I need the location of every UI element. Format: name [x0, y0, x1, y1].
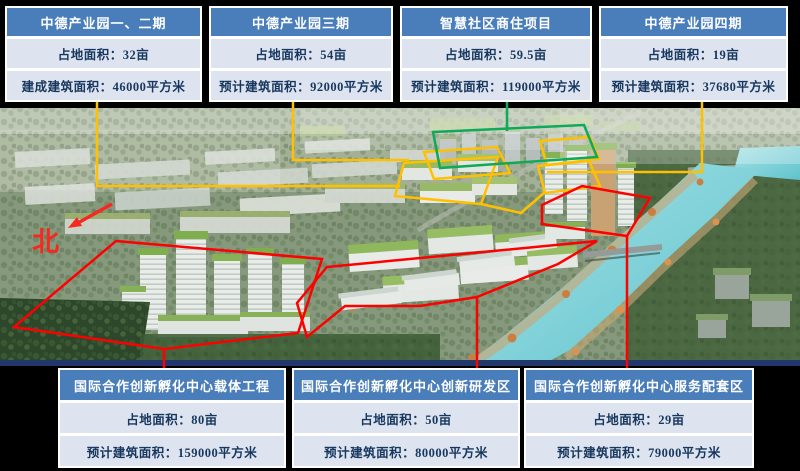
land-area-row: 占地面积：19亩 — [601, 39, 786, 68]
project-title: 国际合作创新孵化中心服务配套区 — [526, 370, 752, 400]
building-area-row: 建成建筑面积：46000平方米 — [7, 71, 200, 100]
building-area-row: 预计建筑面积：119000平方米 — [402, 71, 590, 100]
project-card-phase-1-2: 中德产业园一、二期 占地面积：32亩 建成建筑面积：46000平方米 — [5, 6, 202, 102]
project-title: 智慧社区商住项目 — [402, 8, 590, 36]
project-card-phase-3: 中德产业园三期 占地面积：54亩 预计建筑面积：92000平方米 — [209, 6, 393, 102]
building-area-row: 预计建筑面积：79000平方米 — [526, 436, 752, 466]
project-card-phase-4: 中德产业园四期 占地面积：19亩 预计建筑面积：37680平方米 — [599, 6, 788, 102]
project-title: 国际合作创新孵化中心创新研发区 — [294, 370, 518, 400]
project-title: 中德产业园一、二期 — [7, 8, 200, 36]
project-title: 国际合作创新孵化中心载体工程 — [60, 370, 284, 400]
project-card-carrier: 国际合作创新孵化中心载体工程 占地面积：80亩 预计建筑面积：159000平方米 — [58, 368, 286, 468]
land-area-row: 占地面积：29亩 — [526, 403, 752, 433]
land-area-row: 占地面积：54亩 — [211, 39, 391, 68]
building-area-row: 预计建筑面积：37680平方米 — [601, 71, 786, 100]
project-card-smart-community: 智慧社区商住项目 占地面积：59.5亩 预计建筑面积：119000平方米 — [400, 6, 592, 102]
building-area-row: 预计建筑面积：159000平方米 — [60, 436, 284, 466]
slide: 北 中德产业园一、二期 占地面积：32亩 建成建筑面积：46000平方米 中德产… — [0, 0, 800, 471]
project-title: 中德产业园三期 — [211, 8, 391, 36]
project-title: 中德产业园四期 — [601, 8, 786, 36]
building-area-row: 预计建筑面积：92000平方米 — [211, 71, 391, 100]
aerial-render-image — [0, 108, 800, 366]
land-area-row: 占地面积：32亩 — [7, 39, 200, 68]
project-card-rnd: 国际合作创新孵化中心创新研发区 占地面积：50亩 预计建筑面积：80000平方米 — [292, 368, 520, 468]
project-card-service: 国际合作创新孵化中心服务配套区 占地面积：29亩 预计建筑面积：79000平方米 — [524, 368, 754, 468]
land-area-row: 占地面积：50亩 — [294, 403, 518, 433]
land-area-row: 占地面积：80亩 — [60, 403, 284, 433]
building-area-row: 预计建筑面积：80000平方米 — [294, 436, 518, 466]
land-area-row: 占地面积：59.5亩 — [402, 39, 590, 68]
